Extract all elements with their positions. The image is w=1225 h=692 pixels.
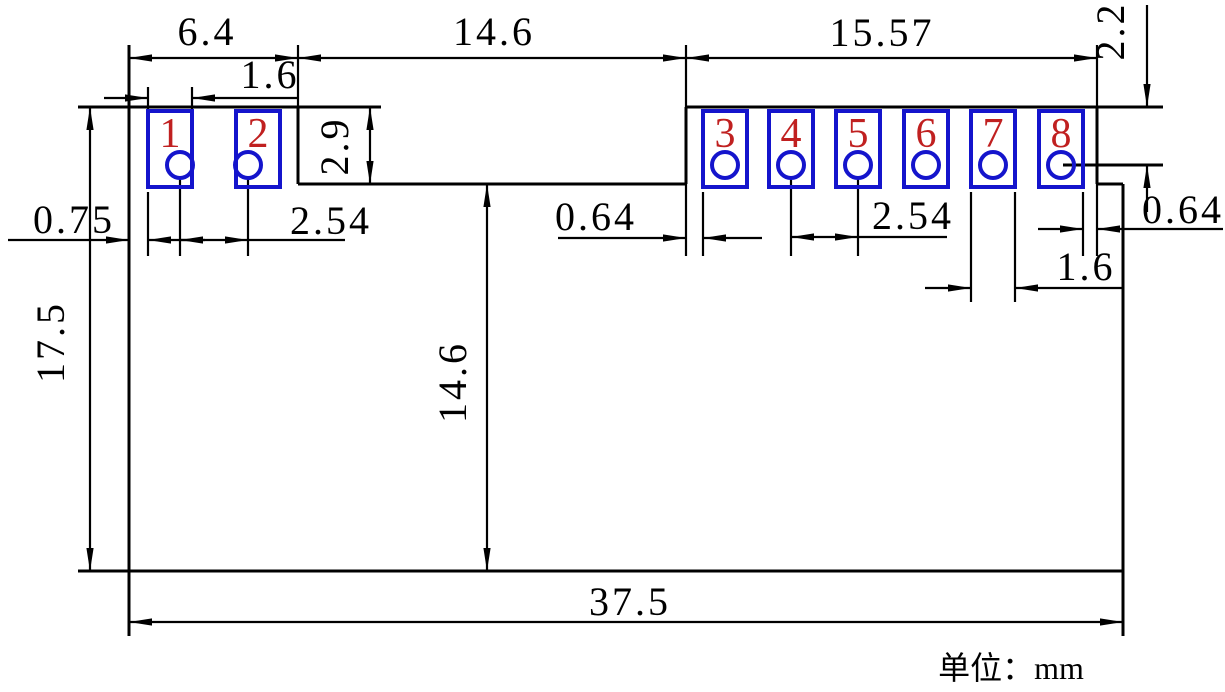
unit-label: 单位：mm [938,650,1084,686]
dimension-label: 0.64 [1142,187,1224,232]
dimension-label: 15.57 [830,10,935,55]
pad-number: 3 [715,111,736,157]
dimension-label: 2.54 [290,198,372,243]
dimension-drawing: 6.4 14.6 15.57 2.2 1.6 2.9 0.75 2.54 0.6… [0,0,1225,692]
pad-number: 2 [248,111,269,157]
pad-number: 6 [916,111,937,157]
dimension-labels: 6.4 14.6 15.57 2.2 1.6 2.9 0.75 2.54 0.6… [28,2,1224,687]
pad-number: 4 [781,111,802,157]
pad-number: 7 [983,111,1004,157]
dimension-label: 14.6 [453,9,535,54]
pad-numbers: 1 2 3 4 5 6 7 8 [160,111,1072,157]
dimension-label: 37.5 [589,579,671,624]
pad-number: 8 [1051,111,1072,157]
dimension-label: 17.5 [28,301,73,383]
dimension-label: 2.54 [872,193,954,238]
dimension-label: 0.64 [555,194,637,239]
pad-number: 1 [160,111,181,157]
dimension-label: 0.75 [33,197,115,242]
dimension-label: 2.2 [1088,2,1133,61]
pad-number: 5 [848,111,869,157]
dimension-label: 6.4 [178,9,237,54]
dimension-label: 1.6 [1057,244,1116,289]
dimension-label: 1.6 [241,52,300,97]
dimension-lines [8,5,1223,622]
technical-drawing-page: 6.4 14.6 15.57 2.2 1.6 2.9 0.75 2.54 0.6… [0,0,1225,692]
dimension-label: 2.9 [312,117,357,176]
dimension-label: 14.6 [430,341,475,423]
pad-outlines [148,111,1083,187]
